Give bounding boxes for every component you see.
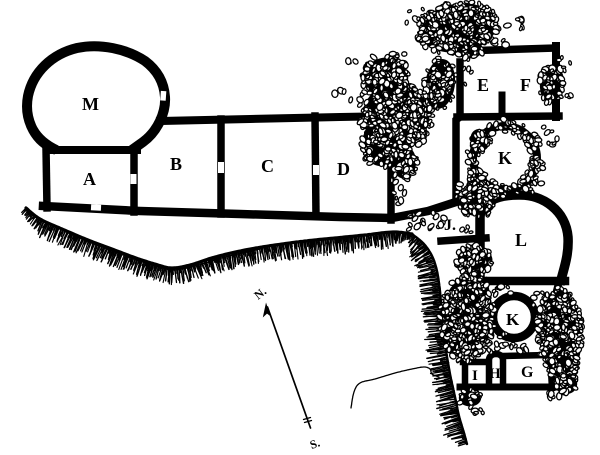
svg-text:A: A xyxy=(83,169,96,189)
svg-text:C: C xyxy=(261,156,274,176)
svg-text:K: K xyxy=(506,310,520,329)
svg-text:J.: J. xyxy=(444,217,456,234)
svg-text:F: F xyxy=(520,75,531,95)
svg-text:D: D xyxy=(337,159,350,179)
svg-text:G: G xyxy=(521,364,534,381)
svg-text:K: K xyxy=(498,148,512,168)
svg-text:I: I xyxy=(472,368,478,384)
svg-text:B: B xyxy=(170,154,182,174)
svg-text:L: L xyxy=(515,230,527,250)
svg-text:M: M xyxy=(82,94,99,114)
svg-text:H: H xyxy=(489,366,501,382)
svg-text:E: E xyxy=(477,75,489,95)
